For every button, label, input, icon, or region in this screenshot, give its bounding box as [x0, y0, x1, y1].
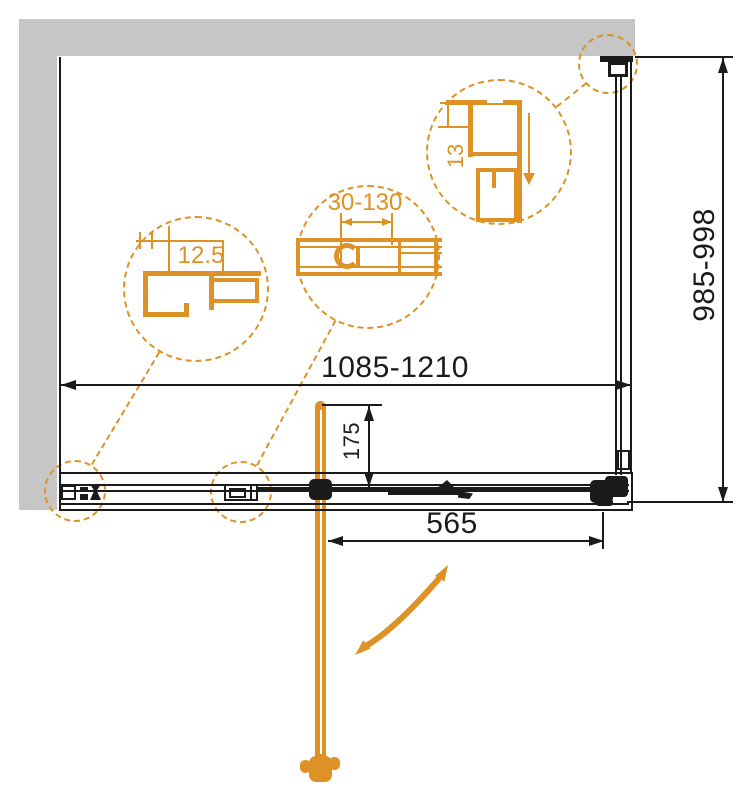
profile-segment [143, 271, 148, 317]
dim-door-ext [602, 512, 604, 549]
door-swing-arrow-icon [340, 555, 460, 665]
dim-offset-label: 175 [339, 422, 365, 460]
top-wall-profile-box [608, 62, 628, 77]
slide-direction-arrow [523, 173, 535, 185]
profile-segment [214, 299, 259, 303]
detail-dim-tick [139, 232, 141, 249]
profile-segment [434, 238, 438, 276]
wall-left [19, 19, 57, 510]
left-wall-profile [61, 485, 76, 500]
profile-segment [296, 272, 442, 276]
detail-dim-arrow-left [342, 218, 352, 226]
detail-dim-tick [151, 232, 153, 249]
side-glass-line [620, 77, 622, 475]
frame-left-line [59, 57, 61, 472]
profile-segment [470, 152, 519, 156]
detail-dim-line [447, 104, 449, 128]
left-hardware-block [80, 494, 88, 500]
profile-segment [184, 303, 189, 317]
leader-line [556, 82, 587, 107]
detail-dim-tick [438, 126, 469, 128]
left-hardware-block [80, 487, 88, 492]
profile-segment [296, 246, 442, 248]
side-profile-box [617, 450, 630, 470]
profile-segment [143, 312, 189, 317]
handle-foot-right-nub [329, 757, 340, 770]
detail-dim-tick [168, 226, 170, 275]
profile-segment [356, 248, 360, 266]
mid-connector-tick [250, 486, 252, 499]
mid-connector-inner [229, 488, 246, 498]
side-glass-line [615, 77, 617, 475]
dim-depth-label: 985-998 [688, 208, 722, 322]
dim-width-label: 1085-1210 [321, 351, 469, 385]
dim-width-arrow-right [616, 380, 631, 390]
profile-segment [398, 238, 401, 276]
profile-segment [143, 271, 261, 276]
right-roller-block [605, 476, 628, 497]
dim-offset-arrow-up [364, 406, 374, 421]
profile-segment [492, 168, 496, 188]
technical-drawing-canvas: 1085-1210 985-998 175 565 12.5 30-130 [0, 0, 749, 800]
door-latch-bar [388, 489, 458, 495]
detail-dim-tick [222, 241, 224, 274]
profile-box [476, 168, 518, 222]
detail-wall-profile-label: 12.5 [178, 242, 225, 270]
profile-segment [400, 252, 442, 254]
profile-notch [487, 100, 503, 103]
right-roller-block [596, 499, 613, 506]
dim-depth-line [722, 58, 724, 502]
profile-segment [296, 238, 300, 276]
wall-top [19, 19, 635, 56]
profile-segment [214, 278, 259, 282]
profile-segment [296, 238, 442, 242]
detail-dim-line [136, 240, 224, 242]
detail-top-profile-label: 13 [443, 144, 469, 168]
dim-door-label: 565 [426, 507, 478, 541]
profile-segment [296, 266, 442, 268]
handle-bar-highlight [320, 410, 322, 754]
dim-depth-arrow-down [718, 487, 728, 502]
dim-offset-arrow-down [364, 472, 374, 487]
frame-right-line [630, 57, 632, 472]
handle-clamp [309, 479, 332, 500]
profile-segment [468, 105, 473, 157]
profile-segment [255, 278, 259, 303]
rail-line [61, 484, 629, 486]
handle-foot-left-nub [300, 760, 311, 773]
leader-line [91, 352, 160, 465]
rail-line [61, 503, 629, 505]
detail-dim-arrow-right [382, 218, 392, 226]
dim-depth-arrow-up [718, 58, 728, 73]
slide-direction-line [528, 113, 530, 173]
profile-segment [446, 100, 522, 105]
dim-door-arrow-left [328, 536, 343, 546]
dim-width-arrow-left [61, 380, 76, 390]
